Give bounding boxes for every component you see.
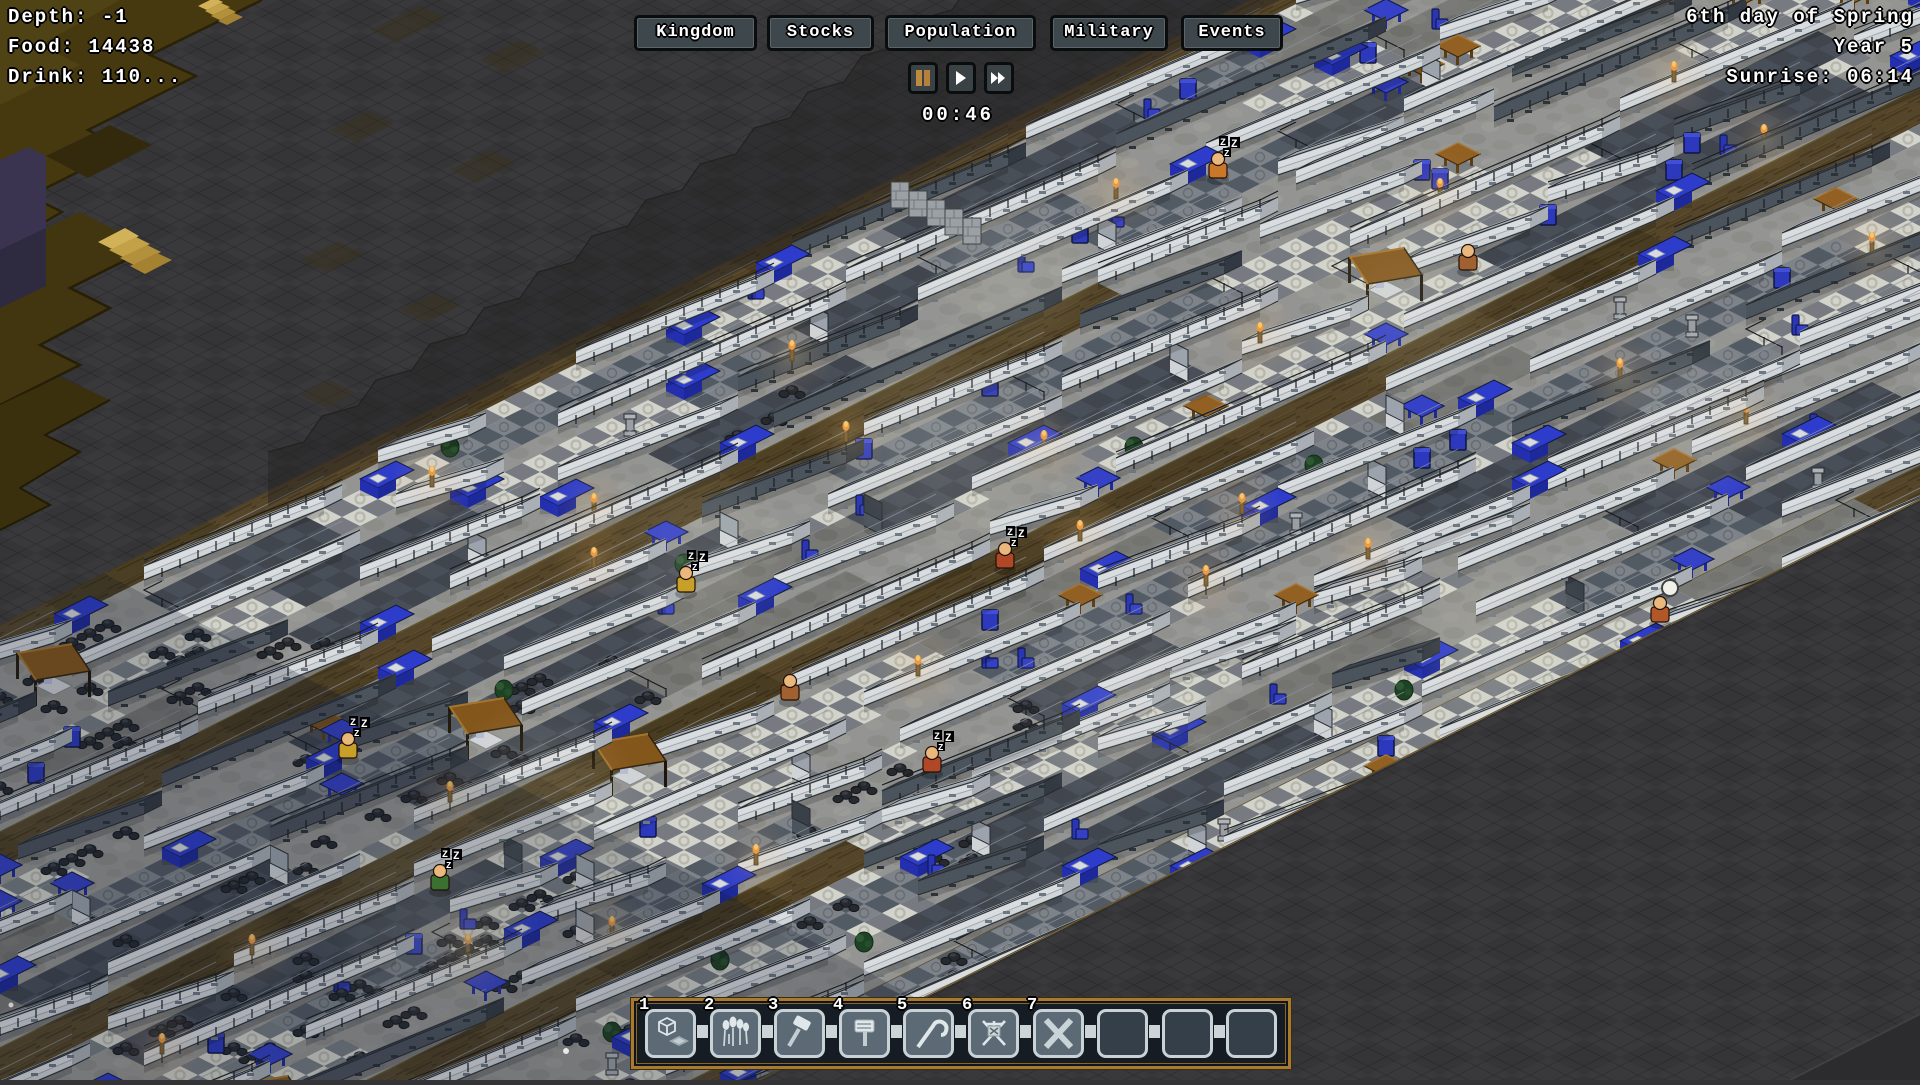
svg-text:Z: Z bbox=[934, 732, 940, 743]
svg-text:Z: Z bbox=[354, 729, 359, 739]
svg-text:Z: Z bbox=[1018, 529, 1025, 541]
svg-text:Z: Z bbox=[1220, 138, 1226, 149]
svg-text:Z: Z bbox=[1011, 539, 1016, 549]
svg-text:Z: Z bbox=[699, 553, 706, 565]
svg-text:Z: Z bbox=[688, 552, 694, 563]
svg-text:Z: Z bbox=[692, 563, 697, 573]
svg-text:Z: Z bbox=[453, 851, 460, 863]
svg-text:Z: Z bbox=[361, 719, 368, 731]
svg-text:Z: Z bbox=[945, 733, 952, 745]
svg-text:Z: Z bbox=[442, 850, 448, 861]
svg-text:Z: Z bbox=[938, 743, 943, 753]
svg-text:Z: Z bbox=[446, 861, 451, 871]
svg-text:Z: Z bbox=[1231, 139, 1238, 151]
svg-text:Z: Z bbox=[1224, 149, 1229, 159]
svg-text:Z: Z bbox=[1007, 528, 1013, 539]
svg-text:Z: Z bbox=[350, 718, 356, 729]
